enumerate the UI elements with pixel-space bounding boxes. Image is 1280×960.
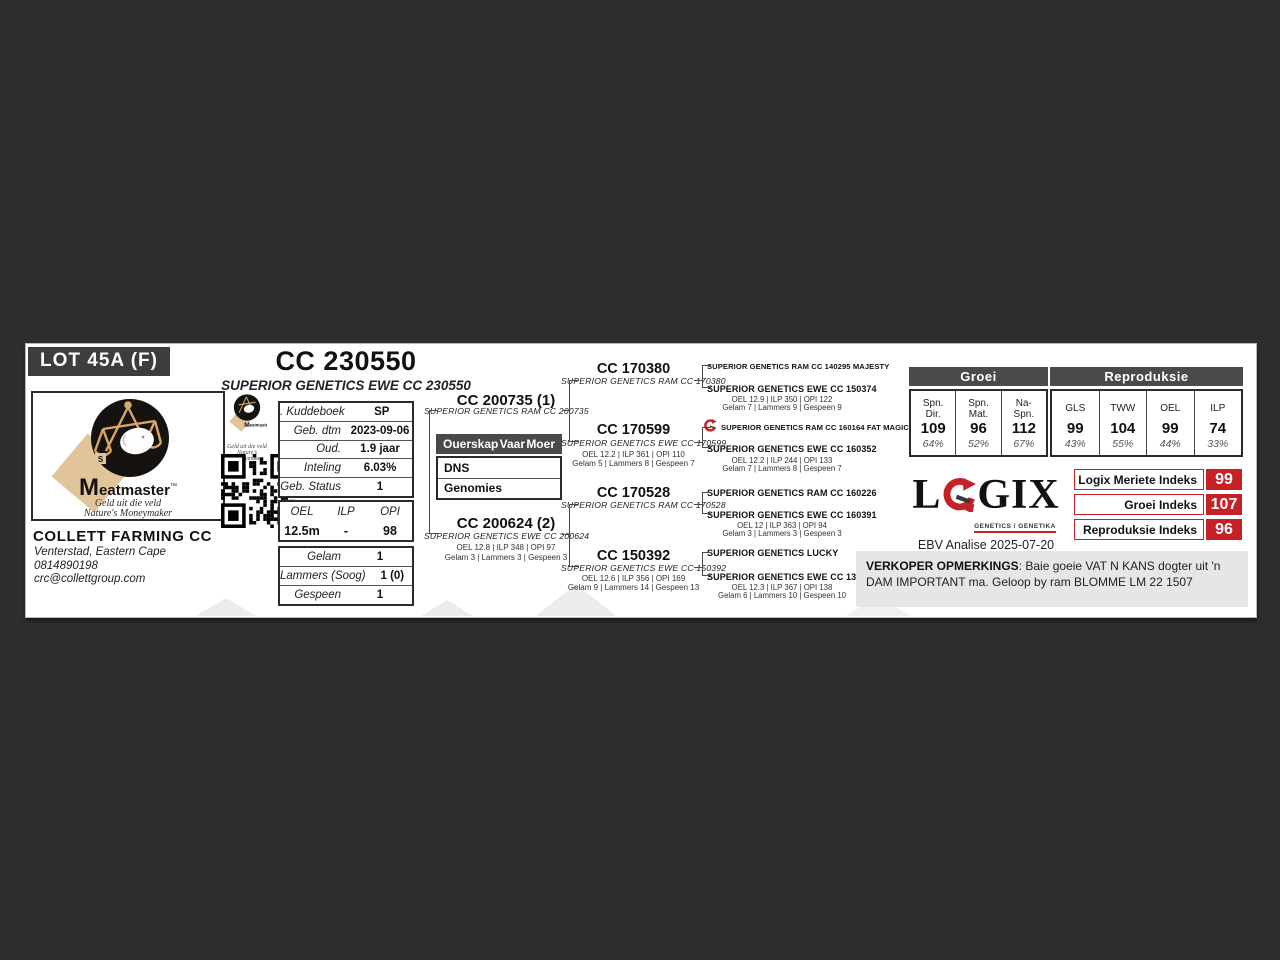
ebv-accuracy: 64% [923, 438, 944, 451]
ebv-accuracy: 52% [968, 438, 989, 451]
meatmaster-wordmark: Meatmaster™ [79, 474, 177, 501]
index-value: 99 [1206, 469, 1242, 490]
seller-name: COLLETT FARMING CC [33, 528, 212, 545]
great-grandparent-stats: Gelam 7 | Lammers 9 | Gespeen 9 [707, 403, 857, 412]
detail-label: Oud. [280, 443, 348, 455]
viewer-background: LOT 45A (F) CC 230550 SUPERIOR GENETICS … [0, 0, 1280, 960]
table-row: 12.5m - 98 [280, 521, 412, 540]
pedigree-connector [702, 492, 711, 514]
seller-remarks: VERKOPER OPMERKINGS: Baie goeie VAT N KA… [856, 551, 1248, 607]
great-grandparent-stats: Gelam 6 | Lammers 10 | Gespeen 10 [707, 591, 857, 600]
lambing-value: 1 [348, 551, 412, 563]
production-header: OEL [280, 506, 324, 518]
wordmark-rest: eatmaster [99, 482, 170, 499]
grandparent-id: CC 170380 [571, 361, 696, 377]
index-badge: Groei Indeks 107 [1074, 494, 1242, 515]
reproduction-table: GLS 99 43% TWW 104 55% OEL 99 44% ILP 74… [1050, 389, 1243, 457]
grandparent-id: CC 170599 [571, 422, 696, 438]
table-row: Gelam1 [280, 548, 412, 566]
parentage-title: Ouerskap [443, 437, 498, 451]
detail-label: Geb. Status [280, 481, 348, 493]
dam-stats: OEL 12.8 | ILP 348 | OPI 97 [424, 543, 588, 552]
pedigree-connector [569, 504, 578, 567]
great-grandparent-stats: Gelam 7 | Lammers 8 | Gespeen 7 [707, 464, 857, 473]
ebv-accuracy: 43% [1065, 438, 1086, 451]
table-row: Geb. dtm2023-09-06 [280, 421, 412, 440]
logix-wordmark: L GIX [904, 475, 1068, 515]
remarks-label: VERKOPER OPMERKINGS [866, 559, 1019, 573]
animal-id-title: CC 230550 [181, 346, 511, 377]
great-grandparent-name: SUPERIOR GENETICS EWE CC 130210 [707, 572, 877, 582]
parentage-header: Ouerskap Vaar Moer [436, 434, 562, 454]
ebv-label: TWW [1110, 398, 1135, 420]
ebv-accuracy: 44% [1160, 438, 1181, 451]
reproduction-header: Reproduksie [1050, 367, 1243, 386]
brand-tagline-2: Nature's Moneymaker [83, 508, 172, 519]
ebv-value: 104 [1110, 420, 1135, 438]
logix-letter-l: L [912, 475, 941, 515]
index-label: Groei Indeks [1074, 494, 1204, 515]
dam-name: SUPERIOR GENETICS EWE CC 200624 [424, 531, 588, 541]
dam-id: CC 200624 (2) [431, 515, 581, 532]
detail-value: 6.03% [348, 462, 412, 474]
parentage-table: DNS Genomies [436, 456, 562, 500]
sire-name: SUPERIOR GENETICS RAM CC 200735 [424, 406, 588, 416]
meatmaster-logo: S Meatmaster™ Geld uit die veld Nature's… [31, 391, 225, 521]
ebv-accuracy: 55% [1112, 438, 1133, 451]
ebv-column: TWW 104 55% [1099, 391, 1147, 455]
index-badge: Logix Meriete Indeks 99 [1074, 469, 1242, 490]
grandparent-id: CC 150392 [571, 548, 696, 564]
ebv-value: 99 [1162, 420, 1179, 438]
pedigree-connector [562, 534, 569, 535]
table-row: Oud.1.9 jaar [280, 440, 412, 459]
auction-lot-card: LOT 45A (F) CC 230550 SUPERIOR GENETICS … [25, 343, 1257, 618]
grandparent-stats: Gelam 5 | Lammers 8 | Gespeen 7 [561, 459, 706, 468]
index-label: Reproduksie Indeks [1074, 519, 1204, 540]
lot-number-badge: LOT 45A (F) [28, 347, 170, 376]
table-row: OEL ILP OPI [280, 502, 412, 521]
logix-letters-gix: GIX [977, 475, 1059, 515]
ebv-label: GLS [1065, 398, 1085, 420]
ebv-analysis-date: EBV Analise 2025-07-20 [904, 538, 1068, 552]
great-grandparent-name: SUPERIOR GENETICS LUCKY [707, 548, 838, 558]
growth-table: Spn. Dir. 109 64% Spn. Mat. 96 52% Na- S… [909, 389, 1048, 457]
pedigree-connector [694, 442, 702, 443]
parentage-row-genomies: Genomies [438, 478, 560, 499]
pedigree-connector [702, 552, 711, 576]
meatmaster-mini-logo: M eatmaster Geld uit die veld Nature's M… [223, 393, 271, 462]
grandparent-name: SUPERIOR GENETICS RAM CC 170528 [561, 500, 706, 510]
pedigree-connector [702, 365, 711, 388]
table-row: Lammers (Soog)1 (0) [280, 566, 412, 585]
pedigree-connector [702, 427, 711, 448]
parentage-row-dns: DNS [438, 458, 560, 478]
detail-value: 1.9 jaar [348, 443, 412, 455]
index-label: Logix Meriete Indeks [1074, 469, 1204, 490]
detail-label: Inteling [280, 462, 348, 474]
lambing-table: Gelam1 Lammers (Soog)1 (0) Gespeen1 [278, 546, 414, 606]
growth-header: Groei [909, 367, 1048, 386]
index-badge: Reproduksie Indeks 96 [1074, 519, 1242, 540]
production-value: - [324, 524, 368, 538]
grandparent-name: SUPERIOR GENETICS RAM CC 170380 [561, 376, 706, 386]
production-header: OPI [368, 506, 412, 518]
index-badges: Logix Meriete Indeks 99 Groei Indeks 107… [1074, 469, 1242, 544]
ebv-value: 99 [1067, 420, 1084, 438]
meatmaster-logo-graphic: S Meatmaster™ Geld uit die veld Nature's… [33, 393, 223, 519]
grandparent-name: SUPERIOR GENETICS EWE CC 150392 [561, 563, 706, 573]
great-grandparent-name: SUPERIOR GENETICS RAM CC 140295 MAJESTY [707, 362, 889, 371]
table-row: Inteling6.03% [280, 458, 412, 477]
production-header: ILP [324, 506, 368, 518]
lambing-label: Gelam [280, 551, 348, 563]
index-value: 96 [1206, 519, 1242, 540]
ebv-label: Spn. Mat. [968, 398, 989, 420]
table-row: Geb. Status1 [280, 477, 412, 496]
seller-phone: 0814890198 [34, 560, 166, 574]
ebv-value: 109 [921, 420, 946, 438]
pedigree-connector [694, 567, 702, 568]
lambing-label: Gespeen [280, 589, 348, 601]
ebv-column: OEL 99 44% [1146, 391, 1194, 455]
seller-location: Venterstad, Eastern Cape [34, 546, 166, 560]
ebv-column: ILP 74 33% [1194, 391, 1242, 455]
pedigree-connector [429, 410, 438, 534]
logix-caption: GENETICS / GENETIKA [974, 523, 1056, 533]
mini-logo-graphic: M eatmaster [227, 393, 267, 439]
ebv-value: 112 [1012, 420, 1036, 438]
production-value: 98 [368, 524, 412, 538]
great-grandparent-name: SUPERIOR GENETICS RAM CC 160226 [707, 488, 877, 498]
grandparent-id: CC 170528 [571, 485, 696, 501]
pedigree-connector [694, 504, 702, 505]
ebv-accuracy: 33% [1207, 438, 1228, 451]
parentage-col-sire: Vaar [500, 437, 525, 451]
detail-value: 2023-09-06 [348, 425, 412, 437]
ebv-column: GLS 99 43% [1052, 391, 1099, 455]
great-grandparent-name: SUPERIOR GENETICS RAM CC 160164 FAT MAGI… [721, 423, 909, 432]
grandparent-stats: OEL 12.2 | ILP 361 | OPI 110 [561, 450, 706, 459]
ebv-column: Spn. Mat. 96 52% [955, 391, 1000, 455]
logix-g-icon [942, 478, 976, 512]
detail-label: Geb. dtm [280, 425, 348, 437]
ebv-label: Spn. Dir. [923, 398, 944, 420]
ebv-value: 96 [970, 420, 987, 438]
parentage-col-dam: Moer [526, 437, 555, 451]
grandparent-stats: Gelam 9 | Lammers 14 | Gespeen 13 [561, 583, 706, 592]
grandparent-stats: OEL 12.6 | ILP 356 | OPI 169 [561, 574, 706, 583]
pedigree-connector [694, 380, 702, 381]
index-value: 107 [1206, 494, 1242, 515]
ebv-label: OEL [1160, 398, 1180, 420]
lambing-value: 1 (0) [373, 570, 412, 582]
table-row: . KuddeboekSP [280, 403, 412, 421]
ebv-accuracy: 67% [1013, 438, 1034, 451]
seller-contact-block: Venterstad, Eastern Cape 0814890198 crc@… [34, 546, 166, 587]
ebv-label: ILP [1210, 398, 1225, 420]
detail-label: . Kuddeboek [280, 406, 352, 418]
ebv-column: Na- Spn. 112 67% [1001, 391, 1046, 455]
watermark-shape [196, 598, 256, 616]
great-grandparent-name: SUPERIOR GENETICS EWE CC 160391 [707, 510, 877, 520]
animal-details-table: . KuddeboekSP Geb. dtm2023-09-06 Oud.1.9… [278, 401, 414, 498]
production-value: 12.5m [280, 524, 324, 538]
detail-value: 1 [348, 481, 412, 493]
great-grandparent-name: SUPERIOR GENETICS EWE CC 150374 [707, 384, 877, 394]
great-grandparent-name: SUPERIOR GENETICS EWE CC 160352 [707, 444, 877, 454]
seller-email: crc@collettgroup.com [34, 573, 166, 587]
logix-logo: L GIX GENETICS / GENETIKA EBV Analise 20… [904, 475, 1068, 552]
detail-value: SP [352, 406, 412, 418]
great-grandparent-stats: Gelam 3 | Lammers 3 | Gespeen 3 [707, 529, 857, 538]
svg-text:eatmaster: eatmaster [250, 423, 267, 428]
dam-stats: Gelam 3 | Lammers 3 | Gespeen 3 [424, 553, 588, 562]
ebv-label: Na- Spn. [1014, 398, 1035, 420]
pedigree-connector [562, 410, 569, 411]
lambing-label: Lammers (Soog) [280, 570, 373, 582]
s-letter: S [98, 455, 104, 464]
ebv-value: 74 [1209, 420, 1226, 438]
grandparent-name: SUPERIOR GENETICS EWE CC 170599 [561, 438, 706, 448]
lambing-value: 1 [348, 589, 412, 601]
watermark-shape [421, 600, 473, 616]
pedigree-connector [569, 380, 578, 442]
ebv-column: Spn. Dir. 109 64% [911, 391, 955, 455]
table-row: Gespeen1 [280, 585, 412, 604]
production-table: OEL ILP OPI 12.5m - 98 [278, 500, 414, 542]
